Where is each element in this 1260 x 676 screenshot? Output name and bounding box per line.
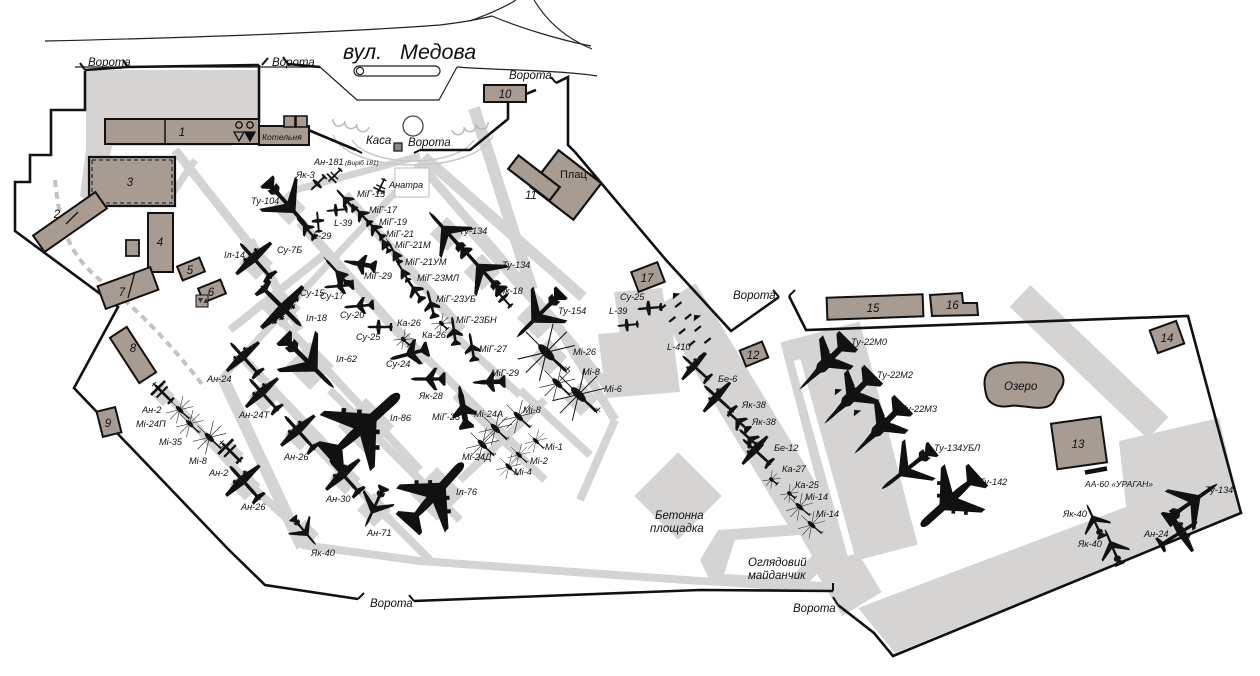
svg-text:МіГ-29: МіГ-29 bbox=[491, 368, 519, 378]
svg-text:Ту-154: Ту-154 bbox=[558, 306, 586, 316]
svg-text:8: 8 bbox=[130, 343, 137, 355]
svg-text:Мі-14: Мі-14 bbox=[816, 509, 839, 519]
svg-text:Мі-24А: Мі-24А bbox=[474, 409, 503, 419]
svg-text:МіГ-23МЛ: МіГ-23МЛ bbox=[417, 273, 460, 283]
svg-text:Ту-134УБЛ: Ту-134УБЛ bbox=[934, 443, 981, 453]
svg-text:Іл-76: Іл-76 bbox=[456, 487, 478, 497]
svg-text:17: 17 bbox=[641, 273, 654, 285]
svg-text:Су-25: Су-25 bbox=[356, 332, 381, 342]
svg-text:Ворота: Ворота bbox=[793, 603, 836, 615]
svg-text:Плац: Плац bbox=[560, 169, 587, 181]
svg-text:Ан-26: Ан-26 bbox=[283, 452, 309, 462]
svg-text:Ан-30: Ан-30 bbox=[325, 494, 351, 504]
svg-text:Іл-14: Іл-14 bbox=[224, 250, 245, 260]
svg-text:Мі-4: Мі-4 bbox=[514, 467, 532, 477]
svg-text:МіГ-21М: МіГ-21М bbox=[395, 240, 431, 250]
svg-text:Мі-26: Мі-26 bbox=[573, 347, 597, 357]
svg-text:Іл-62: Іл-62 bbox=[336, 354, 357, 364]
svg-text:Як-3: Як-3 bbox=[295, 170, 316, 180]
svg-text:L-410: L-410 bbox=[667, 342, 691, 352]
svg-text:МіГ-25: МіГ-25 bbox=[432, 412, 461, 422]
svg-text:Як-38: Як-38 bbox=[751, 417, 777, 427]
svg-text:15: 15 bbox=[867, 303, 880, 315]
svg-text:Су-24: Су-24 bbox=[386, 359, 410, 369]
svg-text:2: 2 bbox=[53, 209, 61, 221]
svg-text:вул. Медова: вул. Медова bbox=[343, 40, 476, 64]
svg-text:11: 11 bbox=[525, 190, 537, 202]
svg-text:3: 3 bbox=[127, 177, 134, 189]
svg-text:Мі-14: Мі-14 bbox=[805, 492, 828, 502]
svg-text:Ка-26: Ка-26 bbox=[422, 330, 447, 340]
svg-text:Ворота: Ворота bbox=[408, 137, 451, 149]
svg-text:13: 13 bbox=[1072, 439, 1085, 451]
svg-text:МіГ-21: МіГ-21 bbox=[386, 229, 414, 239]
svg-text:Оглядовиймайданчик: Оглядовиймайданчик bbox=[748, 557, 807, 582]
svg-text:Ту-104: Ту-104 bbox=[251, 196, 279, 206]
svg-text:Ка-27: Ка-27 bbox=[782, 464, 807, 474]
svg-text:Як-18: Як-18 bbox=[498, 286, 524, 296]
svg-text:Ворота: Ворота bbox=[509, 70, 552, 82]
svg-text:Ан-24: Ан-24 bbox=[1143, 529, 1168, 539]
svg-text:МіГ-23УБ: МіГ-23УБ bbox=[436, 294, 476, 304]
svg-text:Ворота: Ворота bbox=[370, 598, 413, 610]
svg-text:Іл-18: Іл-18 bbox=[306, 313, 328, 323]
svg-text:Ту-142: Ту-142 bbox=[979, 477, 1007, 487]
svg-text:Мі-2: Мі-2 bbox=[530, 456, 548, 466]
svg-text:Іл-86: Іл-86 bbox=[390, 413, 412, 423]
svg-text:Ворота: Ворота bbox=[733, 290, 776, 302]
svg-text:Су-17: Су-17 bbox=[320, 291, 345, 301]
svg-text:L-39: L-39 bbox=[334, 218, 352, 228]
svg-text:Котельня: Котельня bbox=[262, 132, 302, 142]
svg-text:МіГ-15: МіГ-15 bbox=[357, 189, 386, 199]
svg-text:Мі-1: Мі-1 bbox=[545, 442, 563, 452]
svg-text:Ворота: Ворота bbox=[272, 57, 315, 69]
svg-text:Ту-22М0: Ту-22М0 bbox=[851, 337, 888, 347]
svg-text:Ан-71: Ан-71 bbox=[366, 528, 391, 538]
svg-text:Мі-8: Мі-8 bbox=[523, 405, 542, 415]
svg-text:(Виріб 181): (Виріб 181) bbox=[345, 159, 379, 167]
svg-text:Су-7Б: Су-7Б bbox=[277, 245, 302, 255]
svg-text:МіГ-29: МіГ-29 bbox=[364, 271, 392, 281]
svg-text:Су-20: Су-20 bbox=[340, 310, 365, 320]
svg-text:Як-40: Як-40 bbox=[1062, 509, 1088, 519]
svg-text:Мі-8: Мі-8 bbox=[189, 456, 208, 466]
svg-text:9: 9 bbox=[105, 418, 112, 430]
svg-text:МіГ-21УМ: МіГ-21УМ bbox=[405, 257, 447, 267]
svg-text:Як-28: Як-28 bbox=[418, 391, 444, 401]
svg-text:14: 14 bbox=[1161, 333, 1174, 345]
svg-text:Як-40: Як-40 bbox=[1077, 539, 1103, 549]
svg-text:4: 4 bbox=[157, 237, 163, 249]
svg-text:МіГ-17: МіГ-17 bbox=[369, 205, 398, 215]
svg-text:Ка-26: Ка-26 bbox=[397, 318, 422, 328]
svg-text:МіГ-23БН: МіГ-23БН bbox=[456, 315, 497, 325]
svg-text:Анатра: Анатра bbox=[388, 180, 423, 190]
svg-text:Ту-134: Ту-134 bbox=[1205, 485, 1233, 495]
svg-text:Мі-6: Мі-6 bbox=[604, 384, 623, 394]
svg-text:Ан-2: Ан-2 bbox=[141, 405, 161, 415]
svg-text:16: 16 bbox=[946, 300, 959, 312]
svg-text:МіГ-27: МіГ-27 bbox=[479, 344, 508, 354]
svg-text:Ан-24Т: Ан-24Т bbox=[238, 410, 270, 420]
svg-text:Ан-181: Ан-181 bbox=[313, 157, 344, 167]
svg-text:Бетоннаплощадка: Бетоннаплощадка bbox=[650, 510, 704, 535]
svg-text:L-39: L-39 bbox=[609, 306, 627, 316]
svg-text:Бе-6: Бе-6 bbox=[718, 374, 738, 384]
svg-text:12: 12 bbox=[747, 350, 760, 362]
svg-text:7: 7 bbox=[119, 287, 126, 299]
svg-text:6: 6 bbox=[208, 287, 215, 299]
svg-text:Мі-24П: Мі-24П bbox=[136, 419, 166, 429]
svg-text:5: 5 bbox=[187, 265, 194, 277]
svg-text:Озеро: Озеро bbox=[1004, 381, 1038, 393]
svg-text:Мі-24Д: Мі-24Д bbox=[462, 452, 492, 462]
svg-text:Ан-24: Ан-24 bbox=[206, 374, 231, 384]
svg-text:Ту-134: Ту-134 bbox=[459, 226, 487, 236]
svg-text:Мі-35: Мі-35 bbox=[159, 437, 183, 447]
svg-text:АА-60 «УРАГАН»: АА-60 «УРАГАН» bbox=[1084, 479, 1153, 489]
svg-text:Ту-22М3: Ту-22М3 bbox=[901, 404, 938, 414]
svg-text:Як-38: Як-38 bbox=[741, 400, 767, 410]
svg-text:Ту-134: Ту-134 bbox=[502, 260, 530, 270]
svg-text:Каса: Каса bbox=[366, 135, 391, 147]
svg-text:Ворота: Ворота bbox=[88, 57, 131, 69]
svg-text:Бе-12: Бе-12 bbox=[774, 443, 798, 453]
svg-text:Як-40: Як-40 bbox=[310, 548, 336, 558]
svg-text:МіГ-19: МіГ-19 bbox=[379, 217, 407, 227]
svg-text:Ту-22М2: Ту-22М2 bbox=[877, 370, 913, 380]
svg-text:10: 10 bbox=[499, 89, 512, 101]
svg-text:Ка-25: Ка-25 bbox=[795, 480, 820, 490]
svg-text:Су-25: Су-25 bbox=[620, 292, 645, 302]
svg-text:1: 1 bbox=[179, 127, 185, 139]
svg-text:Ан-2: Ан-2 bbox=[208, 468, 228, 478]
svg-text:Ан-26: Ан-26 bbox=[240, 502, 266, 512]
